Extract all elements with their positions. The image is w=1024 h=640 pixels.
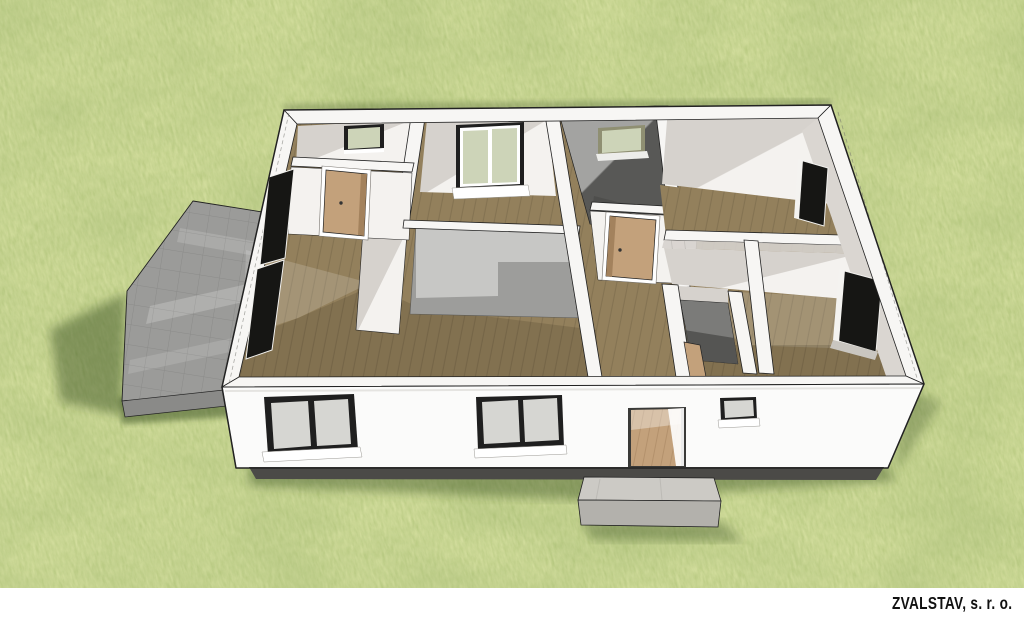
double-window bbox=[452, 122, 530, 199]
window-sill bbox=[718, 418, 760, 428]
bathroom-window bbox=[596, 125, 649, 161]
door-handle bbox=[618, 248, 621, 251]
grass-lawn bbox=[0, 0, 1024, 640]
facade-window-middle bbox=[474, 395, 567, 458]
concrete-screed-floor bbox=[410, 226, 585, 318]
render-canvas bbox=[0, 0, 1024, 640]
entrance-opening bbox=[628, 407, 686, 467]
front-facade bbox=[222, 384, 924, 480]
right-wall-window-1 bbox=[794, 159, 828, 226]
interior-door-1 bbox=[319, 166, 371, 240]
storage-window bbox=[344, 124, 384, 154]
door-handle bbox=[339, 201, 342, 204]
interior-door-2 bbox=[602, 212, 660, 284]
house-cutaway-model bbox=[222, 105, 924, 480]
facade-window-left bbox=[262, 394, 362, 462]
entrance-porch-step bbox=[578, 477, 721, 527]
company-watermark: ZVALSTAV, s. r. o. bbox=[892, 593, 1012, 614]
facade-window-small bbox=[718, 397, 760, 428]
bottom-white-strip bbox=[0, 588, 1024, 640]
architectural-render: ZVALSTAV, s. r. o. bbox=[0, 0, 1024, 640]
foundation-plinth bbox=[249, 467, 884, 480]
